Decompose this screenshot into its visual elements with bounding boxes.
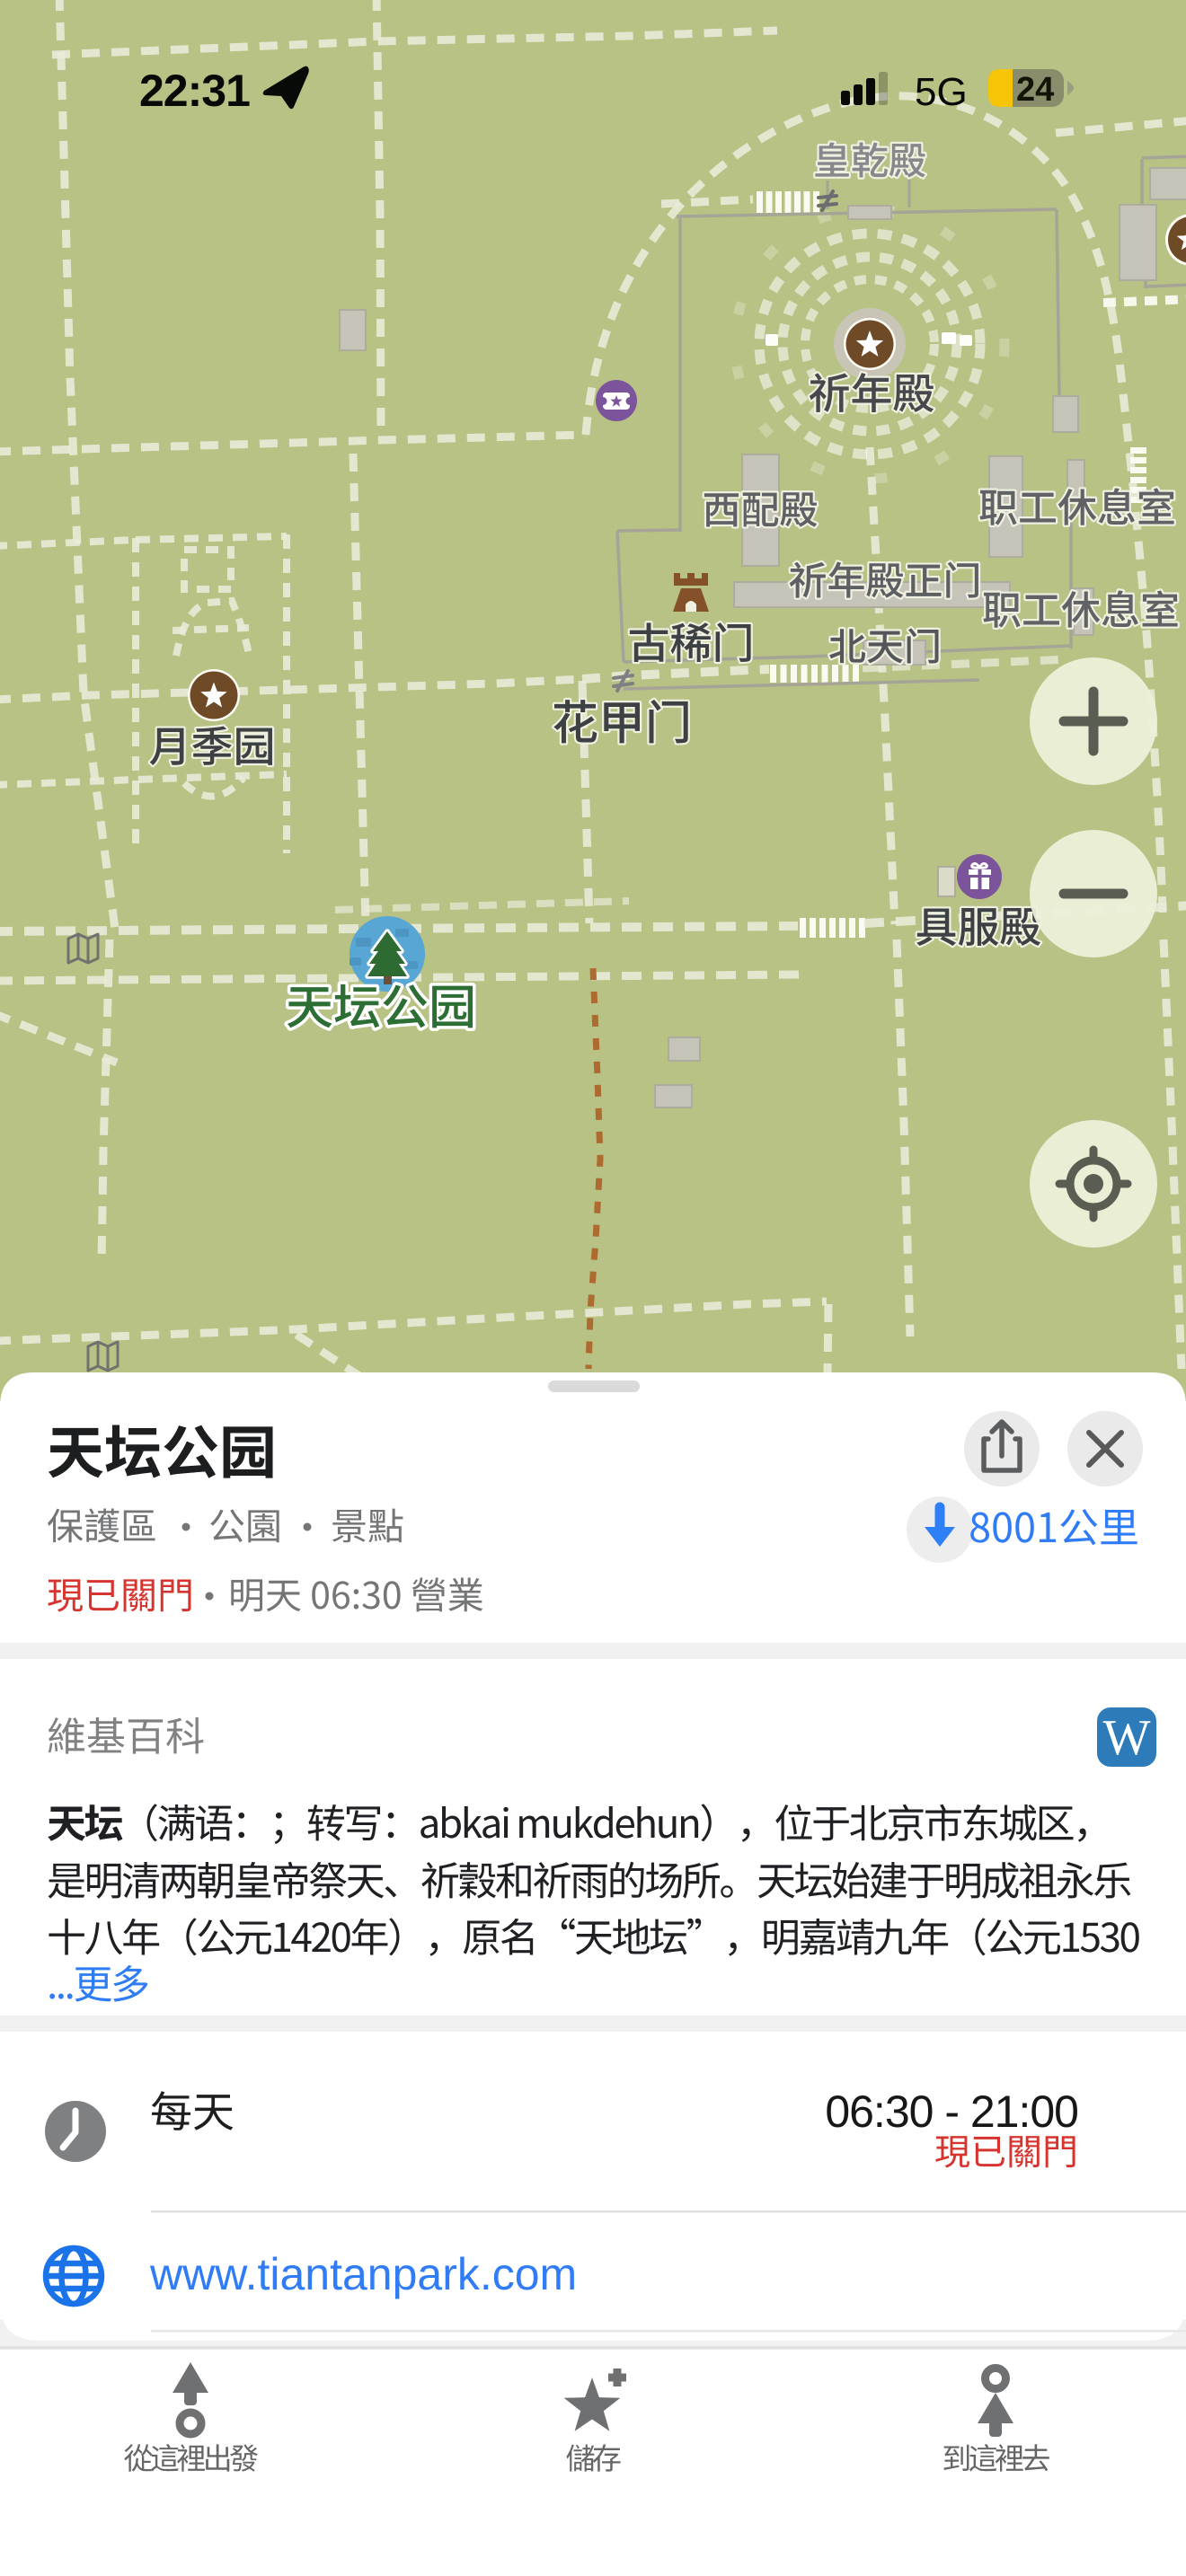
svg-text:24: 24: [1016, 71, 1054, 109]
svg-text:22:31: 22:31: [139, 66, 250, 116]
svg-text:W: W: [1103, 1710, 1151, 1766]
svg-text:www.tiantanpark.com: www.tiantanpark.com: [149, 2249, 577, 2299]
svg-text:5G: 5G: [915, 70, 968, 114]
svg-text:06:30 - 21:00: 06:30 - 21:00: [825, 2086, 1078, 2137]
